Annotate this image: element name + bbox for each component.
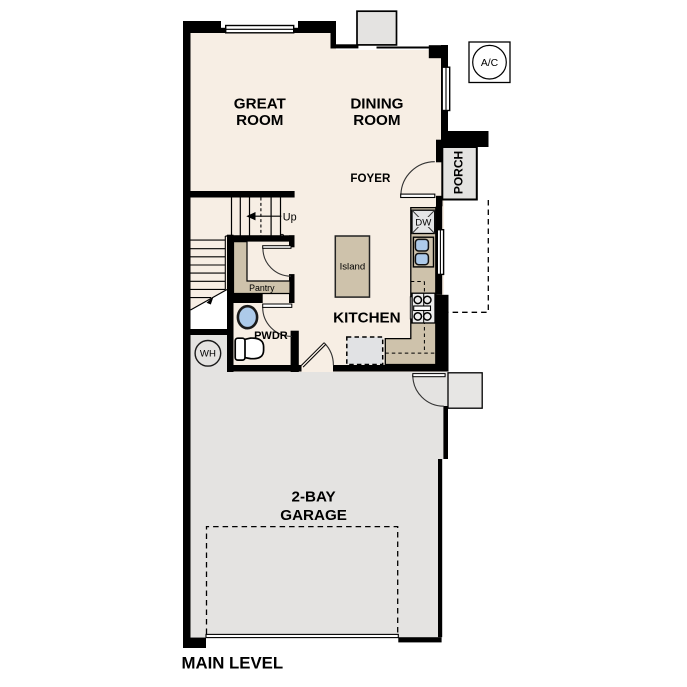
svg-text:ROOM: ROOM bbox=[353, 112, 400, 129]
svg-text:WH: WH bbox=[200, 349, 216, 360]
svg-text:Up: Up bbox=[283, 211, 297, 223]
svg-text:A/C: A/C bbox=[481, 58, 499, 69]
svg-text:PORCH: PORCH bbox=[452, 151, 466, 194]
svg-text:2-BAY: 2-BAY bbox=[292, 489, 336, 506]
svg-text:Island: Island bbox=[340, 262, 366, 273]
svg-text:ROOM: ROOM bbox=[236, 112, 283, 129]
svg-text:DW: DW bbox=[415, 217, 432, 228]
svg-text:FOYER: FOYER bbox=[350, 172, 391, 185]
svg-text:GREAT: GREAT bbox=[234, 96, 287, 113]
svg-text:DINING: DINING bbox=[350, 96, 403, 113]
svg-text:MAIN LEVEL: MAIN LEVEL bbox=[182, 654, 284, 673]
svg-text:Pantry: Pantry bbox=[249, 283, 275, 293]
svg-text:GARAGE: GARAGE bbox=[280, 507, 347, 524]
svg-text:KITCHEN: KITCHEN bbox=[333, 310, 401, 327]
